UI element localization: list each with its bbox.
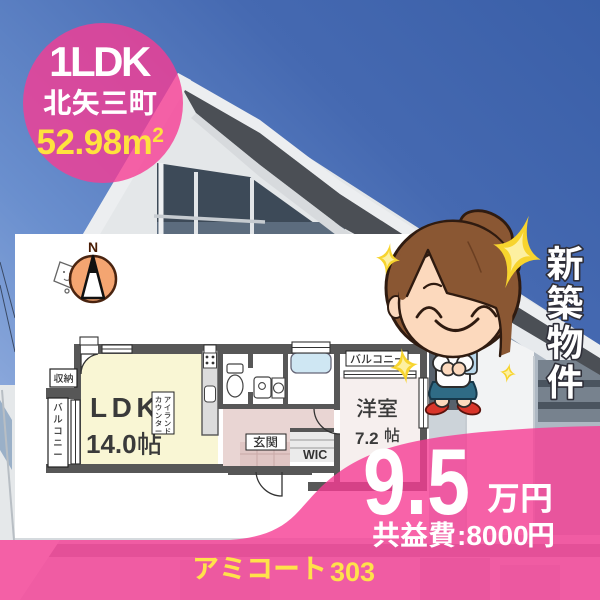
svg-text:52.98m2: 52.98m2	[37, 123, 164, 162]
svg-text:303: 303	[330, 557, 375, 587]
svg-text:9.5: 9.5	[363, 429, 470, 534]
svg-text:1LDK: 1LDK	[49, 38, 151, 85]
svg-text:14.0: 14.0	[86, 429, 137, 459]
svg-text:WIC: WIC	[303, 448, 327, 462]
svg-text::8000: :8000	[457, 520, 529, 551]
svg-text:LDK: LDK	[90, 392, 161, 423]
svg-text:N: N	[88, 239, 98, 255]
